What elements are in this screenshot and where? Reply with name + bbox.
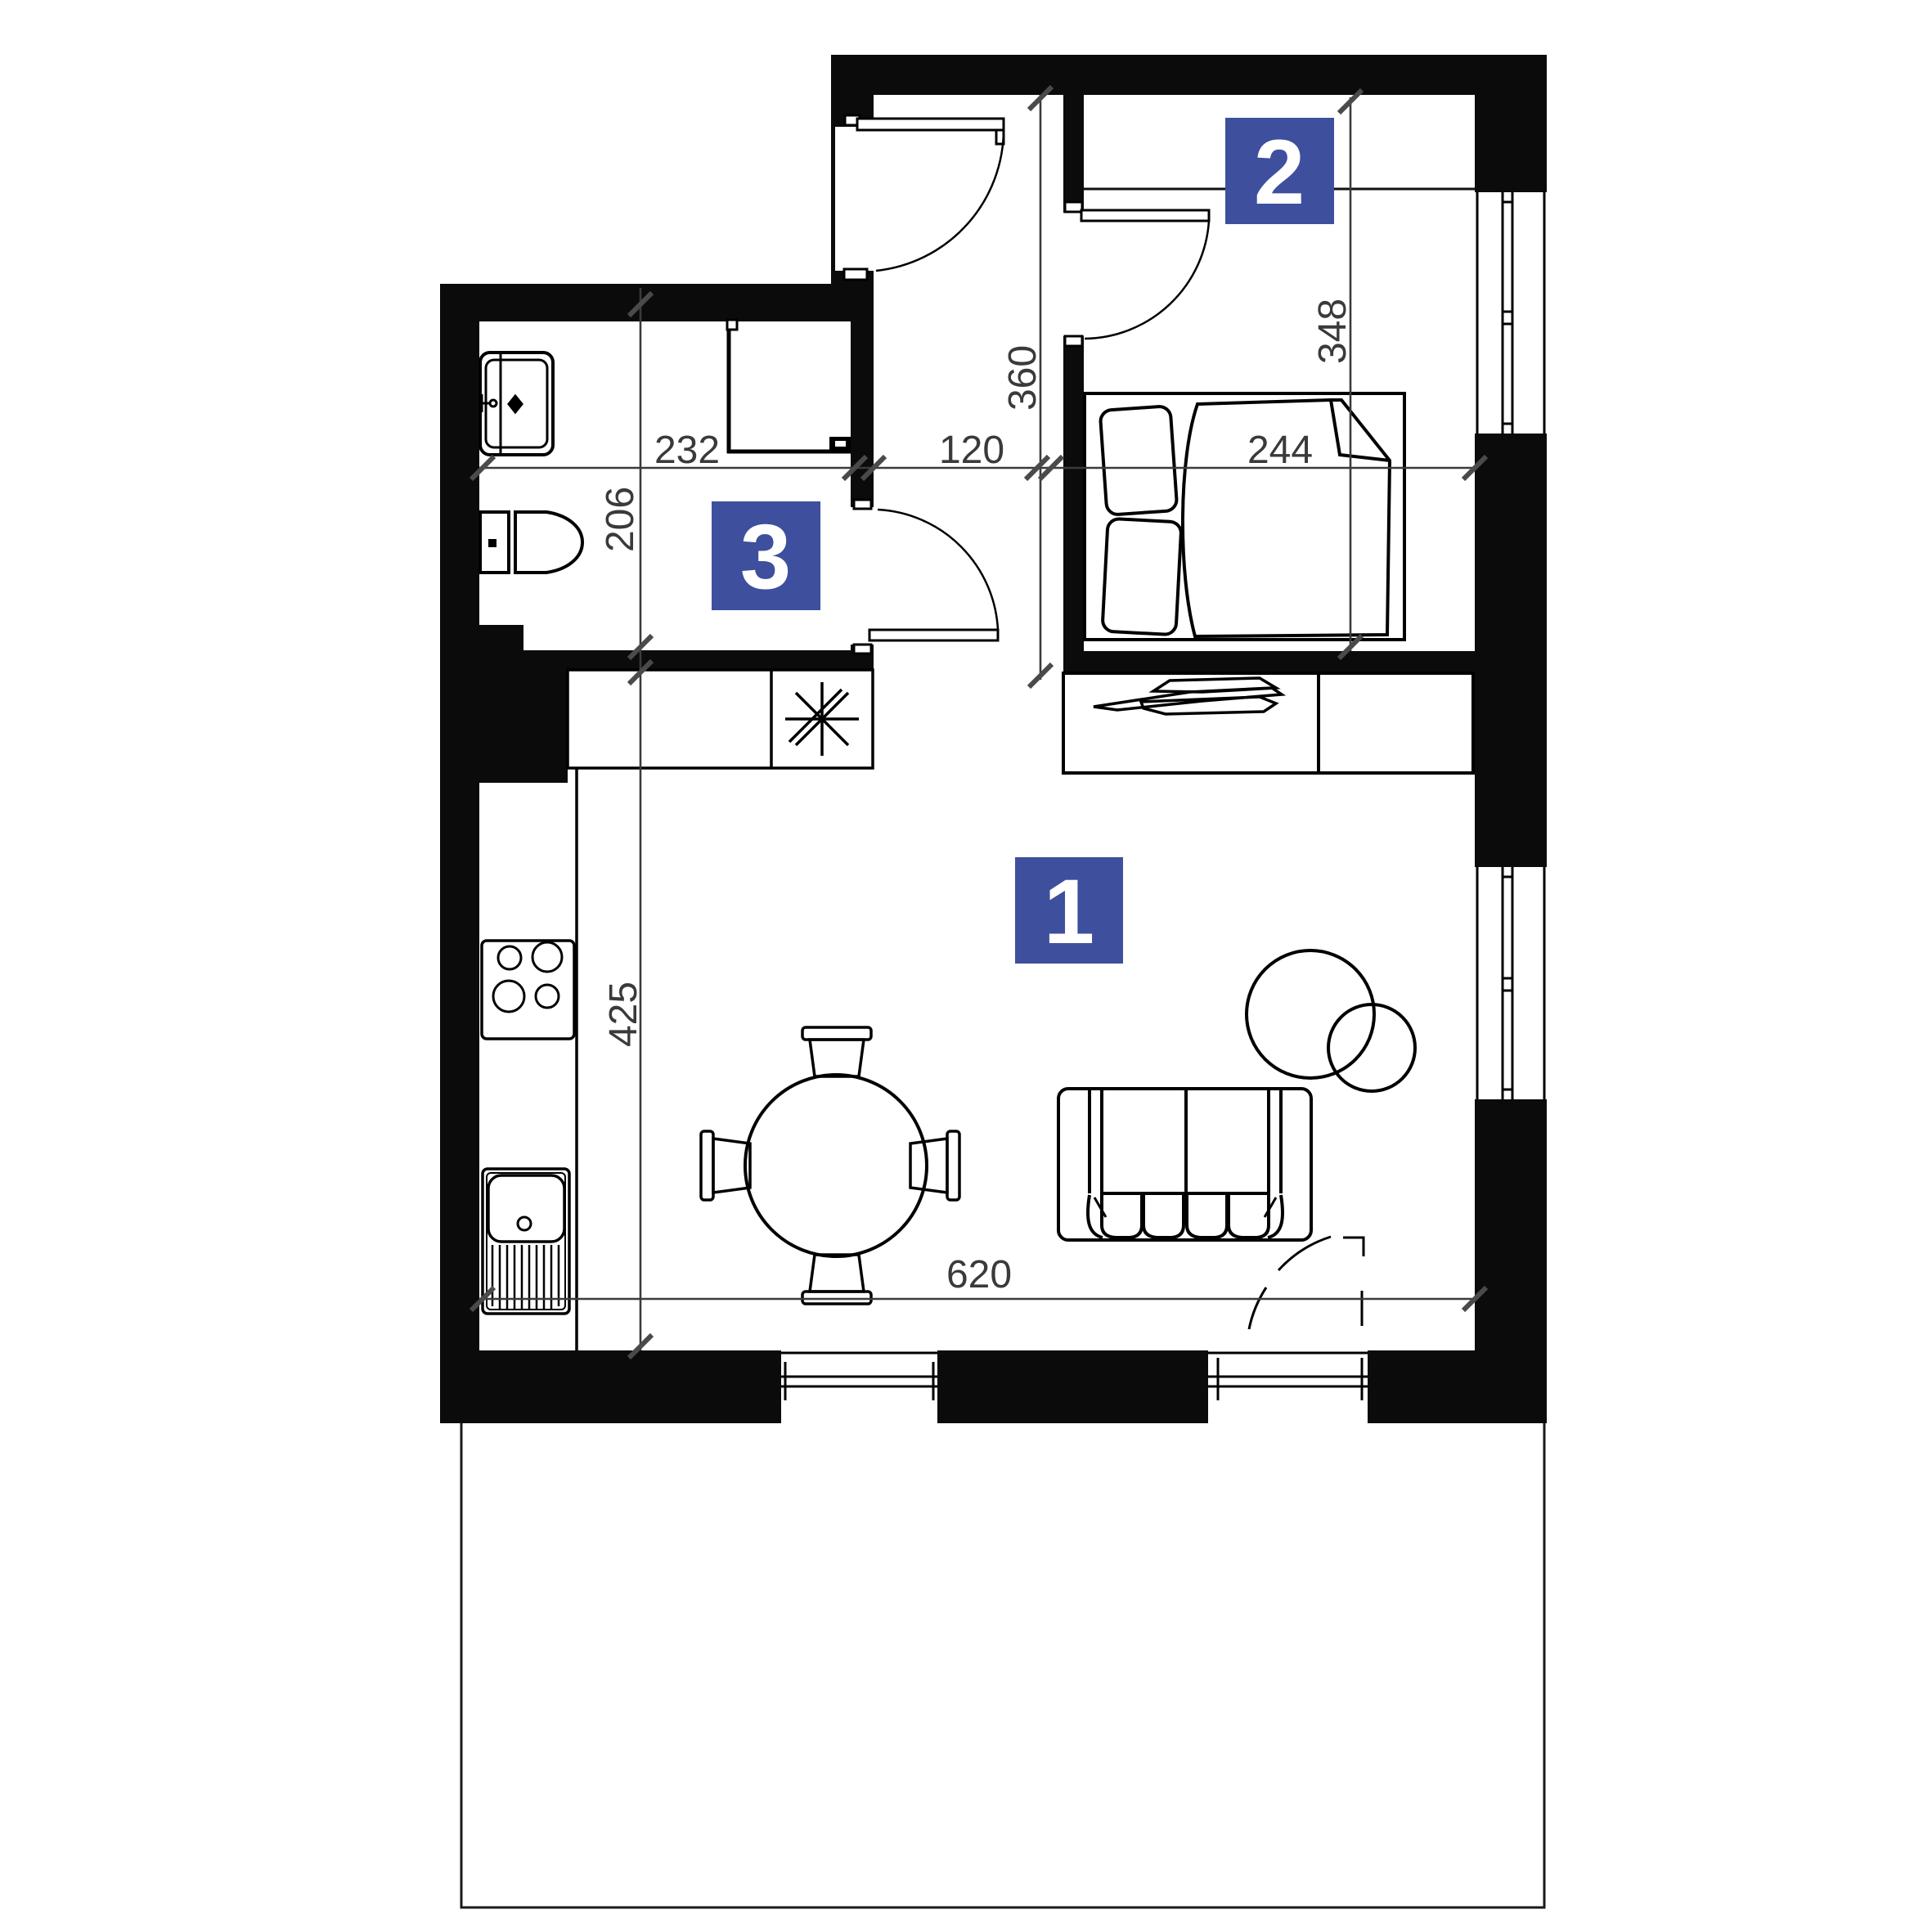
svg-text:425: 425 (602, 982, 645, 1047)
svg-text:232: 232 (654, 429, 720, 472)
svg-text:620: 620 (946, 1253, 1012, 1296)
svg-text:348: 348 (1311, 299, 1355, 364)
svg-text:120: 120 (939, 429, 1004, 472)
svg-text:3: 3 (740, 505, 791, 608)
svg-text:206: 206 (599, 487, 642, 552)
svg-text:360: 360 (1001, 345, 1045, 411)
svg-text:1: 1 (1044, 860, 1094, 963)
svg-text:2: 2 (1254, 121, 1305, 223)
svg-text:244: 244 (1247, 429, 1313, 472)
